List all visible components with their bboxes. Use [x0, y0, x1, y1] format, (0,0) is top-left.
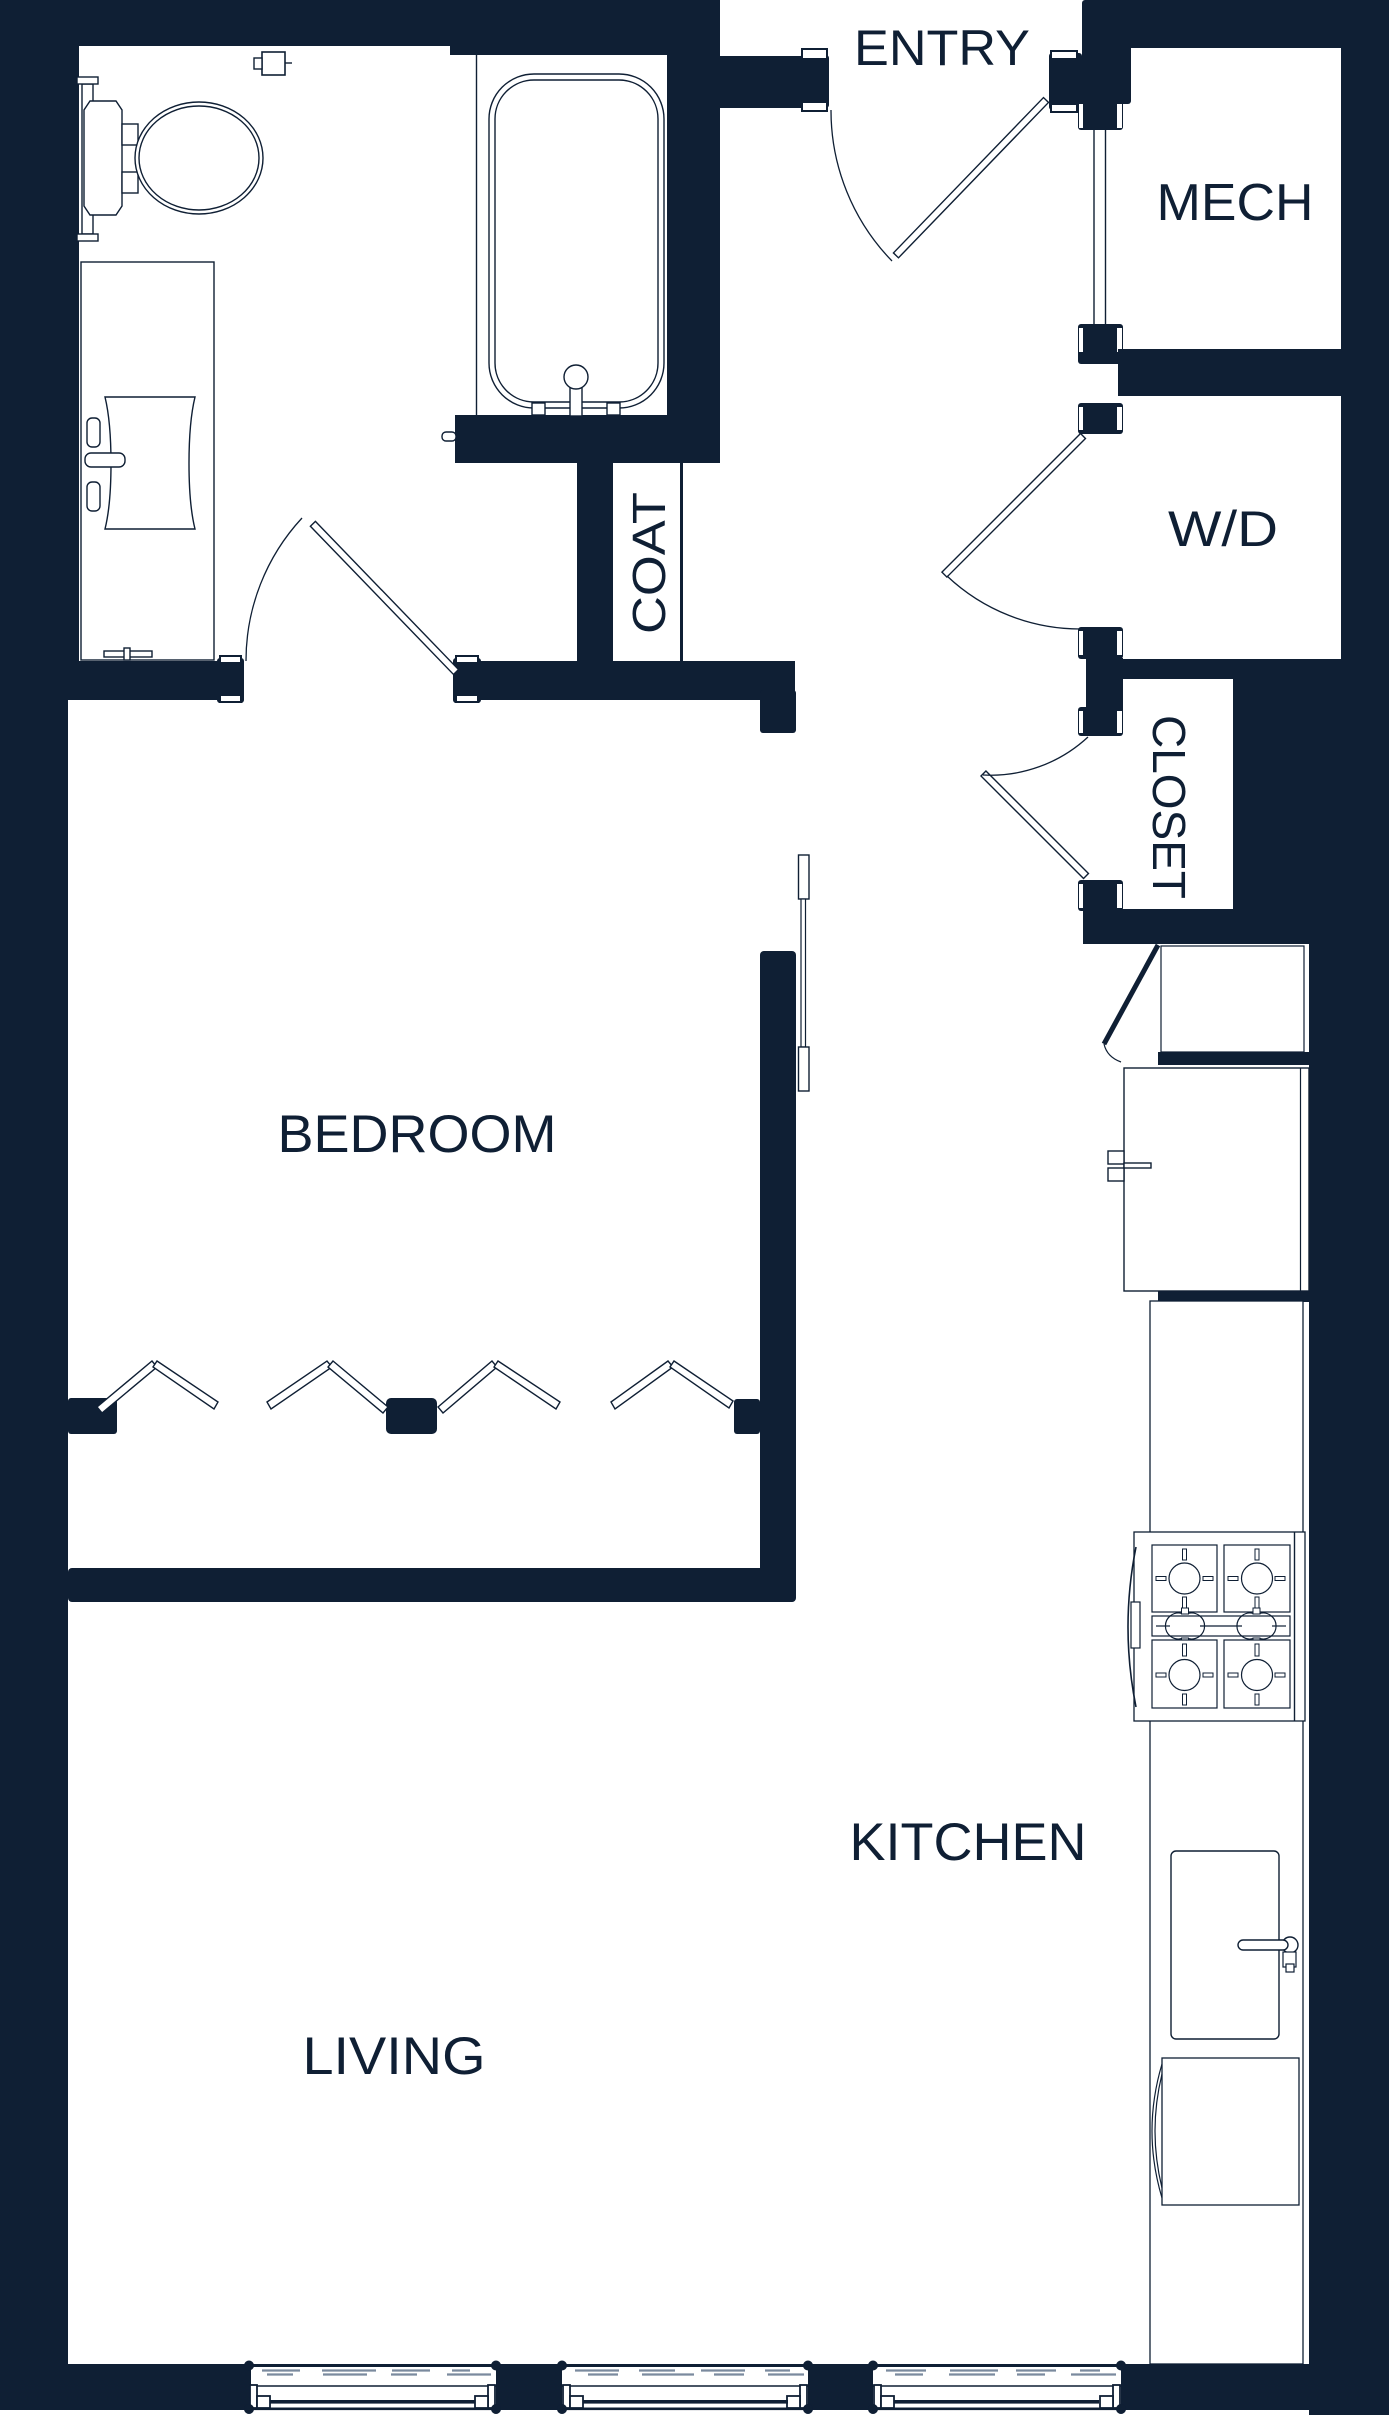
svg-text:COAT: COAT [623, 492, 675, 634]
svg-text:W/D: W/D [1168, 501, 1278, 557]
svg-text:CLOSET: CLOSET [1143, 715, 1195, 899]
svg-text:MECH: MECH [1157, 173, 1314, 231]
svg-text:BEDROOM: BEDROOM [278, 1105, 557, 1164]
svg-text:ENTRY: ENTRY [854, 20, 1030, 76]
svg-text:LIVING: LIVING [303, 2027, 486, 2086]
svg-text:KITCHEN: KITCHEN [850, 1813, 1087, 1872]
